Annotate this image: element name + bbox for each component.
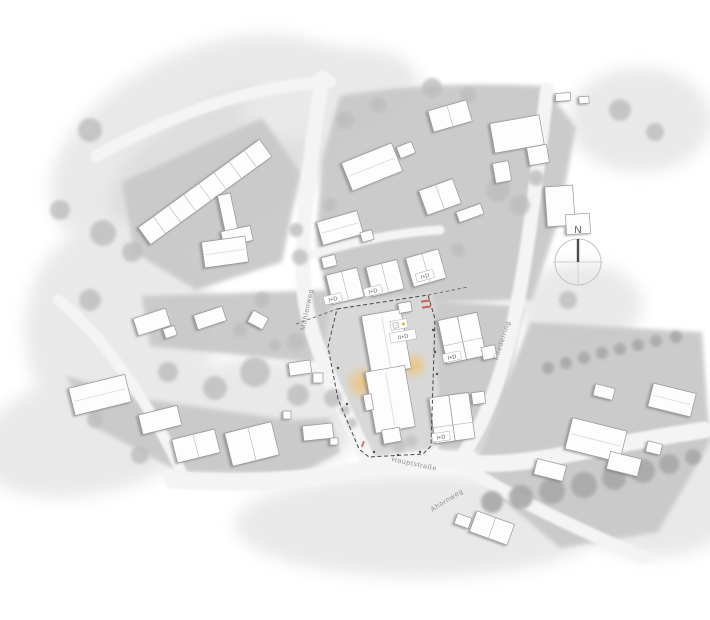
- semi-south-floor-label: I+D: [436, 434, 446, 441]
- compass-north-label: N: [574, 225, 581, 236]
- legend-icon: [393, 322, 399, 328]
- north-compass: N: [553, 225, 603, 286]
- site-plan: II+D I+D I+D I+D I+D I+D Mühlenweg Flied…: [0, 0, 710, 620]
- site-plan-drawing: II+D I+D I+D I+D I+D I+D Mühlenweg Flied…: [0, 0, 710, 620]
